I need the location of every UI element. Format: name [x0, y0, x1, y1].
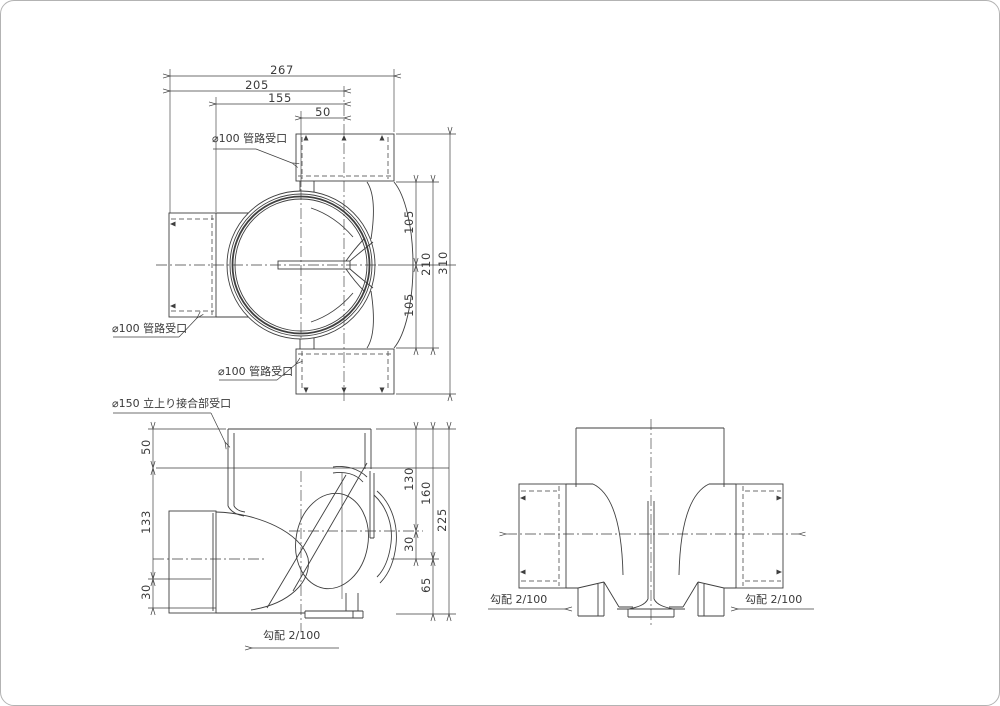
front-label-riser: ⌀150 立上り接合部受口 [112, 397, 231, 411]
plan-dim-155: 155 [258, 91, 302, 105]
plan-dim-105-top: 105 [402, 202, 416, 242]
plan-label-top-socket: ⌀100 管路受口 [212, 132, 287, 146]
side-slope-label-right: 勾配 2/100 [745, 593, 802, 607]
plan-label-bottom-socket: ⌀100 管路受口 [218, 365, 293, 379]
plan-dim-50: 50 [301, 105, 345, 119]
side-slope-label-left: 勾配 2/100 [490, 593, 547, 607]
plan-label-left-socket: ⌀100 管路受口 [112, 322, 187, 336]
front-dim-30-right: 30 [402, 524, 416, 564]
front-slope-label: 勾配 2/100 [263, 629, 320, 643]
plan-dim-105-bottom: 105 [402, 285, 416, 325]
front-dim-50: 50 [139, 427, 153, 467]
plan-dim-205: 205 [235, 78, 279, 92]
front-dim-65: 65 [419, 565, 433, 605]
plan-dim-210: 210 [419, 244, 433, 284]
front-dim-160: 160 [419, 473, 433, 513]
front-dim-130: 130 [402, 459, 416, 499]
front-dim-30-left: 30 [139, 572, 153, 612]
plan-dim-267: 267 [260, 63, 304, 77]
front-dim-133: 133 [139, 502, 153, 542]
drawing-sheet: 267 205 155 50 105 105 210 310 ⌀100 管路受口… [0, 0, 1000, 706]
front-dim-225: 225 [435, 500, 449, 540]
plan-dim-310: 310 [436, 243, 450, 283]
